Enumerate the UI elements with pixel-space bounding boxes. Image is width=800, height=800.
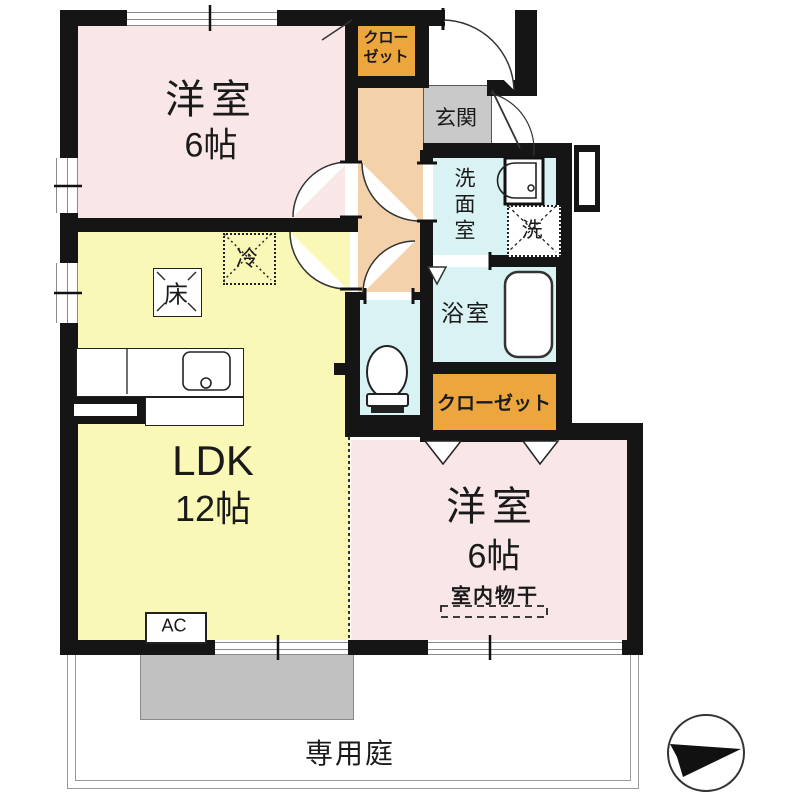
floor-storage-label: 床	[164, 275, 188, 310]
bathtub	[505, 272, 552, 357]
door-arc-bedroom-top	[293, 162, 348, 217]
bedroom-top-size: 6帖	[185, 118, 238, 167]
bedroom-top-name: 洋室	[165, 67, 257, 125]
bedroom-bottom-name: 洋室	[446, 474, 538, 532]
refrigerator-label: 冷	[236, 241, 258, 273]
window-ticks	[54, 5, 490, 660]
kitchen-sink-drain	[201, 378, 211, 388]
entrance-label: 玄関	[435, 102, 477, 132]
ldk-size: 12帖	[175, 480, 251, 532]
washer-label: 洗	[522, 214, 543, 244]
washroom-sink	[498, 158, 544, 204]
toilet	[367, 346, 408, 413]
washroom-label: 洗面室	[448, 167, 478, 245]
compass-icon	[668, 715, 744, 791]
bath-label: 浴室	[441, 294, 491, 328]
closet-top-label: クロー ゼット	[363, 29, 408, 67]
entrance-door-leaf	[492, 90, 520, 148]
closet-door-mark	[425, 441, 461, 464]
door-arc-entrance	[443, 20, 514, 90]
closet-top-line1: クロー	[363, 29, 408, 48]
bath-door-mark	[428, 267, 446, 284]
closet-door-mark	[523, 441, 558, 464]
closet-top-door-leaf	[322, 20, 352, 40]
bedroom-bottom-size: 6帖	[468, 529, 521, 578]
ldk-name: LDK	[172, 437, 254, 485]
closet-top-line2: ゼット	[363, 48, 408, 67]
ac-label: AC	[161, 616, 186, 637]
door-arc-washroom	[362, 163, 420, 221]
closet-mid-label: クローゼット	[437, 389, 551, 416]
drying-label: 室内物干	[451, 580, 539, 609]
door-arc-entrance-inner	[490, 93, 534, 160]
garden-label: 専用庭	[305, 732, 395, 772]
door-arc-ldk	[290, 232, 347, 289]
door-arc-toilet	[363, 241, 415, 293]
floor-plan: 洋室 6帖 クロー ゼット 玄関 洗面室 洗 浴室 クローゼット LDK 12帖…	[0, 0, 800, 800]
